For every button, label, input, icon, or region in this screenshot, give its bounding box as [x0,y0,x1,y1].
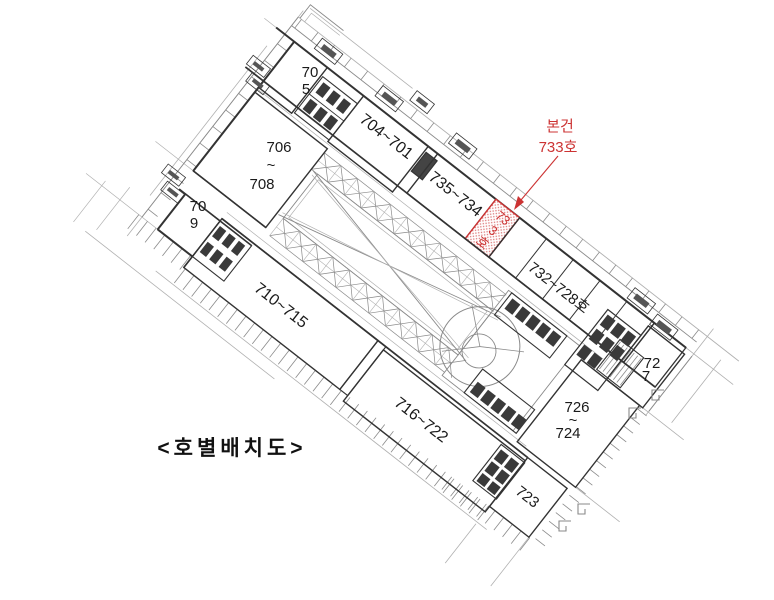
svg-text:7: 7 [642,368,650,385]
svg-text:706: 706 [266,139,291,156]
svg-text:708: 708 [249,176,274,193]
svg-text:<호별배치도>: <호별배치도> [157,437,306,460]
svg-text:~: ~ [267,157,276,174]
svg-text:5: 5 [302,81,310,98]
svg-text:본건: 본건 [546,118,574,135]
svg-text:70: 70 [190,198,207,215]
svg-text:733호: 733호 [539,139,578,156]
svg-text:724: 724 [555,425,580,442]
svg-text:70: 70 [302,64,319,81]
svg-text:9: 9 [190,215,198,232]
